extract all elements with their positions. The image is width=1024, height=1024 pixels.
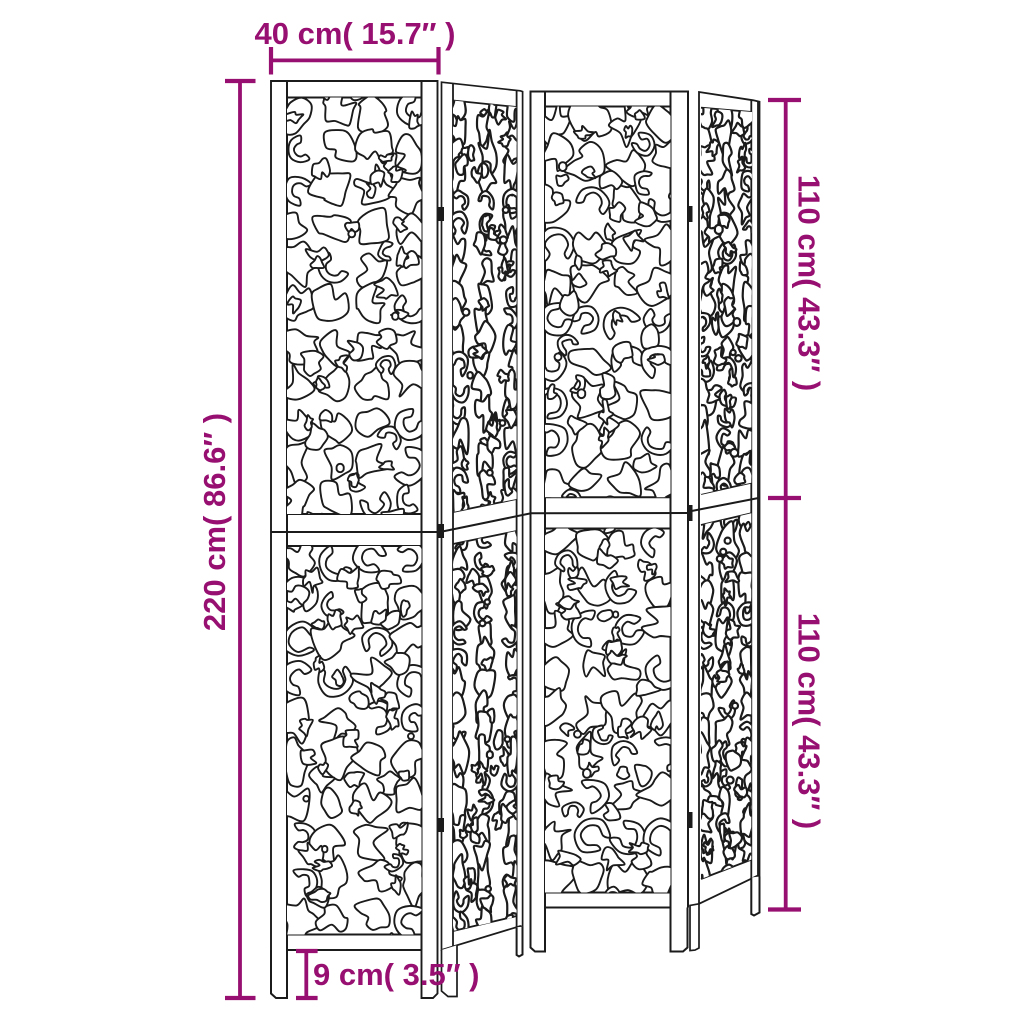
svg-text:110 cm( 43.3″ ): 110 cm( 43.3″ ): [792, 175, 827, 392]
svg-text:9 cm( 3.5″ ): 9 cm( 3.5″ ): [313, 957, 479, 992]
svg-text:40 cm( 15.7″ ): 40 cm( 15.7″ ): [255, 16, 456, 51]
svg-text:220 cm( 86.6″ ): 220 cm( 86.6″ ): [197, 413, 232, 631]
svg-text:110 cm( 43.3″ ): 110 cm( 43.3″ ): [792, 613, 827, 830]
